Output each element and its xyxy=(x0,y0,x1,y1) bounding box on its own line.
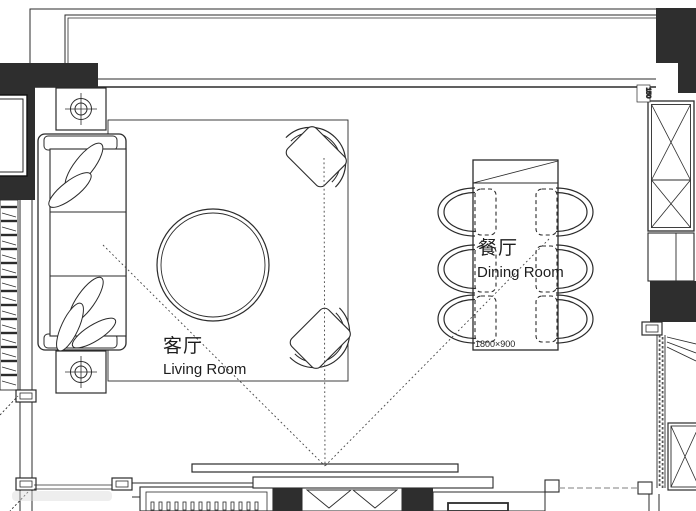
coffee-table xyxy=(157,209,269,321)
door-jamb xyxy=(16,390,36,402)
side-table-lamp-top xyxy=(56,88,106,130)
lower-room-window xyxy=(433,492,545,511)
dining-room-label-zh: 餐厅 xyxy=(478,237,518,259)
door-jamb xyxy=(545,480,559,492)
right-wall-segment xyxy=(650,281,696,322)
living-room-label-en: Living Room xyxy=(163,361,246,378)
pocket-door-track xyxy=(657,335,665,488)
watermark xyxy=(12,491,112,501)
floor-plan-drawing: 150 xyxy=(0,0,696,511)
living-room-label-zh: 客厅 xyxy=(163,335,203,357)
door-swing-dashed xyxy=(0,396,18,415)
wall-dimension-tag: 150 xyxy=(637,85,652,102)
armchair-lower xyxy=(281,299,364,382)
top-right-wall xyxy=(656,8,696,93)
feature-panel xyxy=(302,487,402,511)
dining-table-dimension: 1800×900 xyxy=(475,339,515,349)
left-wall-window xyxy=(0,95,27,176)
floor-plan: 150 xyxy=(0,0,696,511)
door-jamb xyxy=(16,478,36,490)
wall-dimension-text: 150 xyxy=(645,88,652,99)
door-jamb xyxy=(638,482,652,494)
tall-cabinet xyxy=(648,101,694,231)
tv-cabinet xyxy=(253,477,493,488)
outer-boundary-lines xyxy=(30,9,656,63)
top-wall xyxy=(35,79,656,87)
door-jamb xyxy=(642,322,662,335)
louver-window xyxy=(0,200,18,390)
console-cabinet xyxy=(140,487,273,511)
side-table-lamp-bottom xyxy=(56,351,106,393)
corner-cabinet-x xyxy=(668,423,696,490)
door-leaf-lines xyxy=(667,337,696,361)
dining-room-label-en: Dining Room xyxy=(477,264,564,281)
right-shelf-cabinet xyxy=(648,233,694,281)
tv-panel xyxy=(192,464,458,472)
door-jamb xyxy=(112,478,132,490)
